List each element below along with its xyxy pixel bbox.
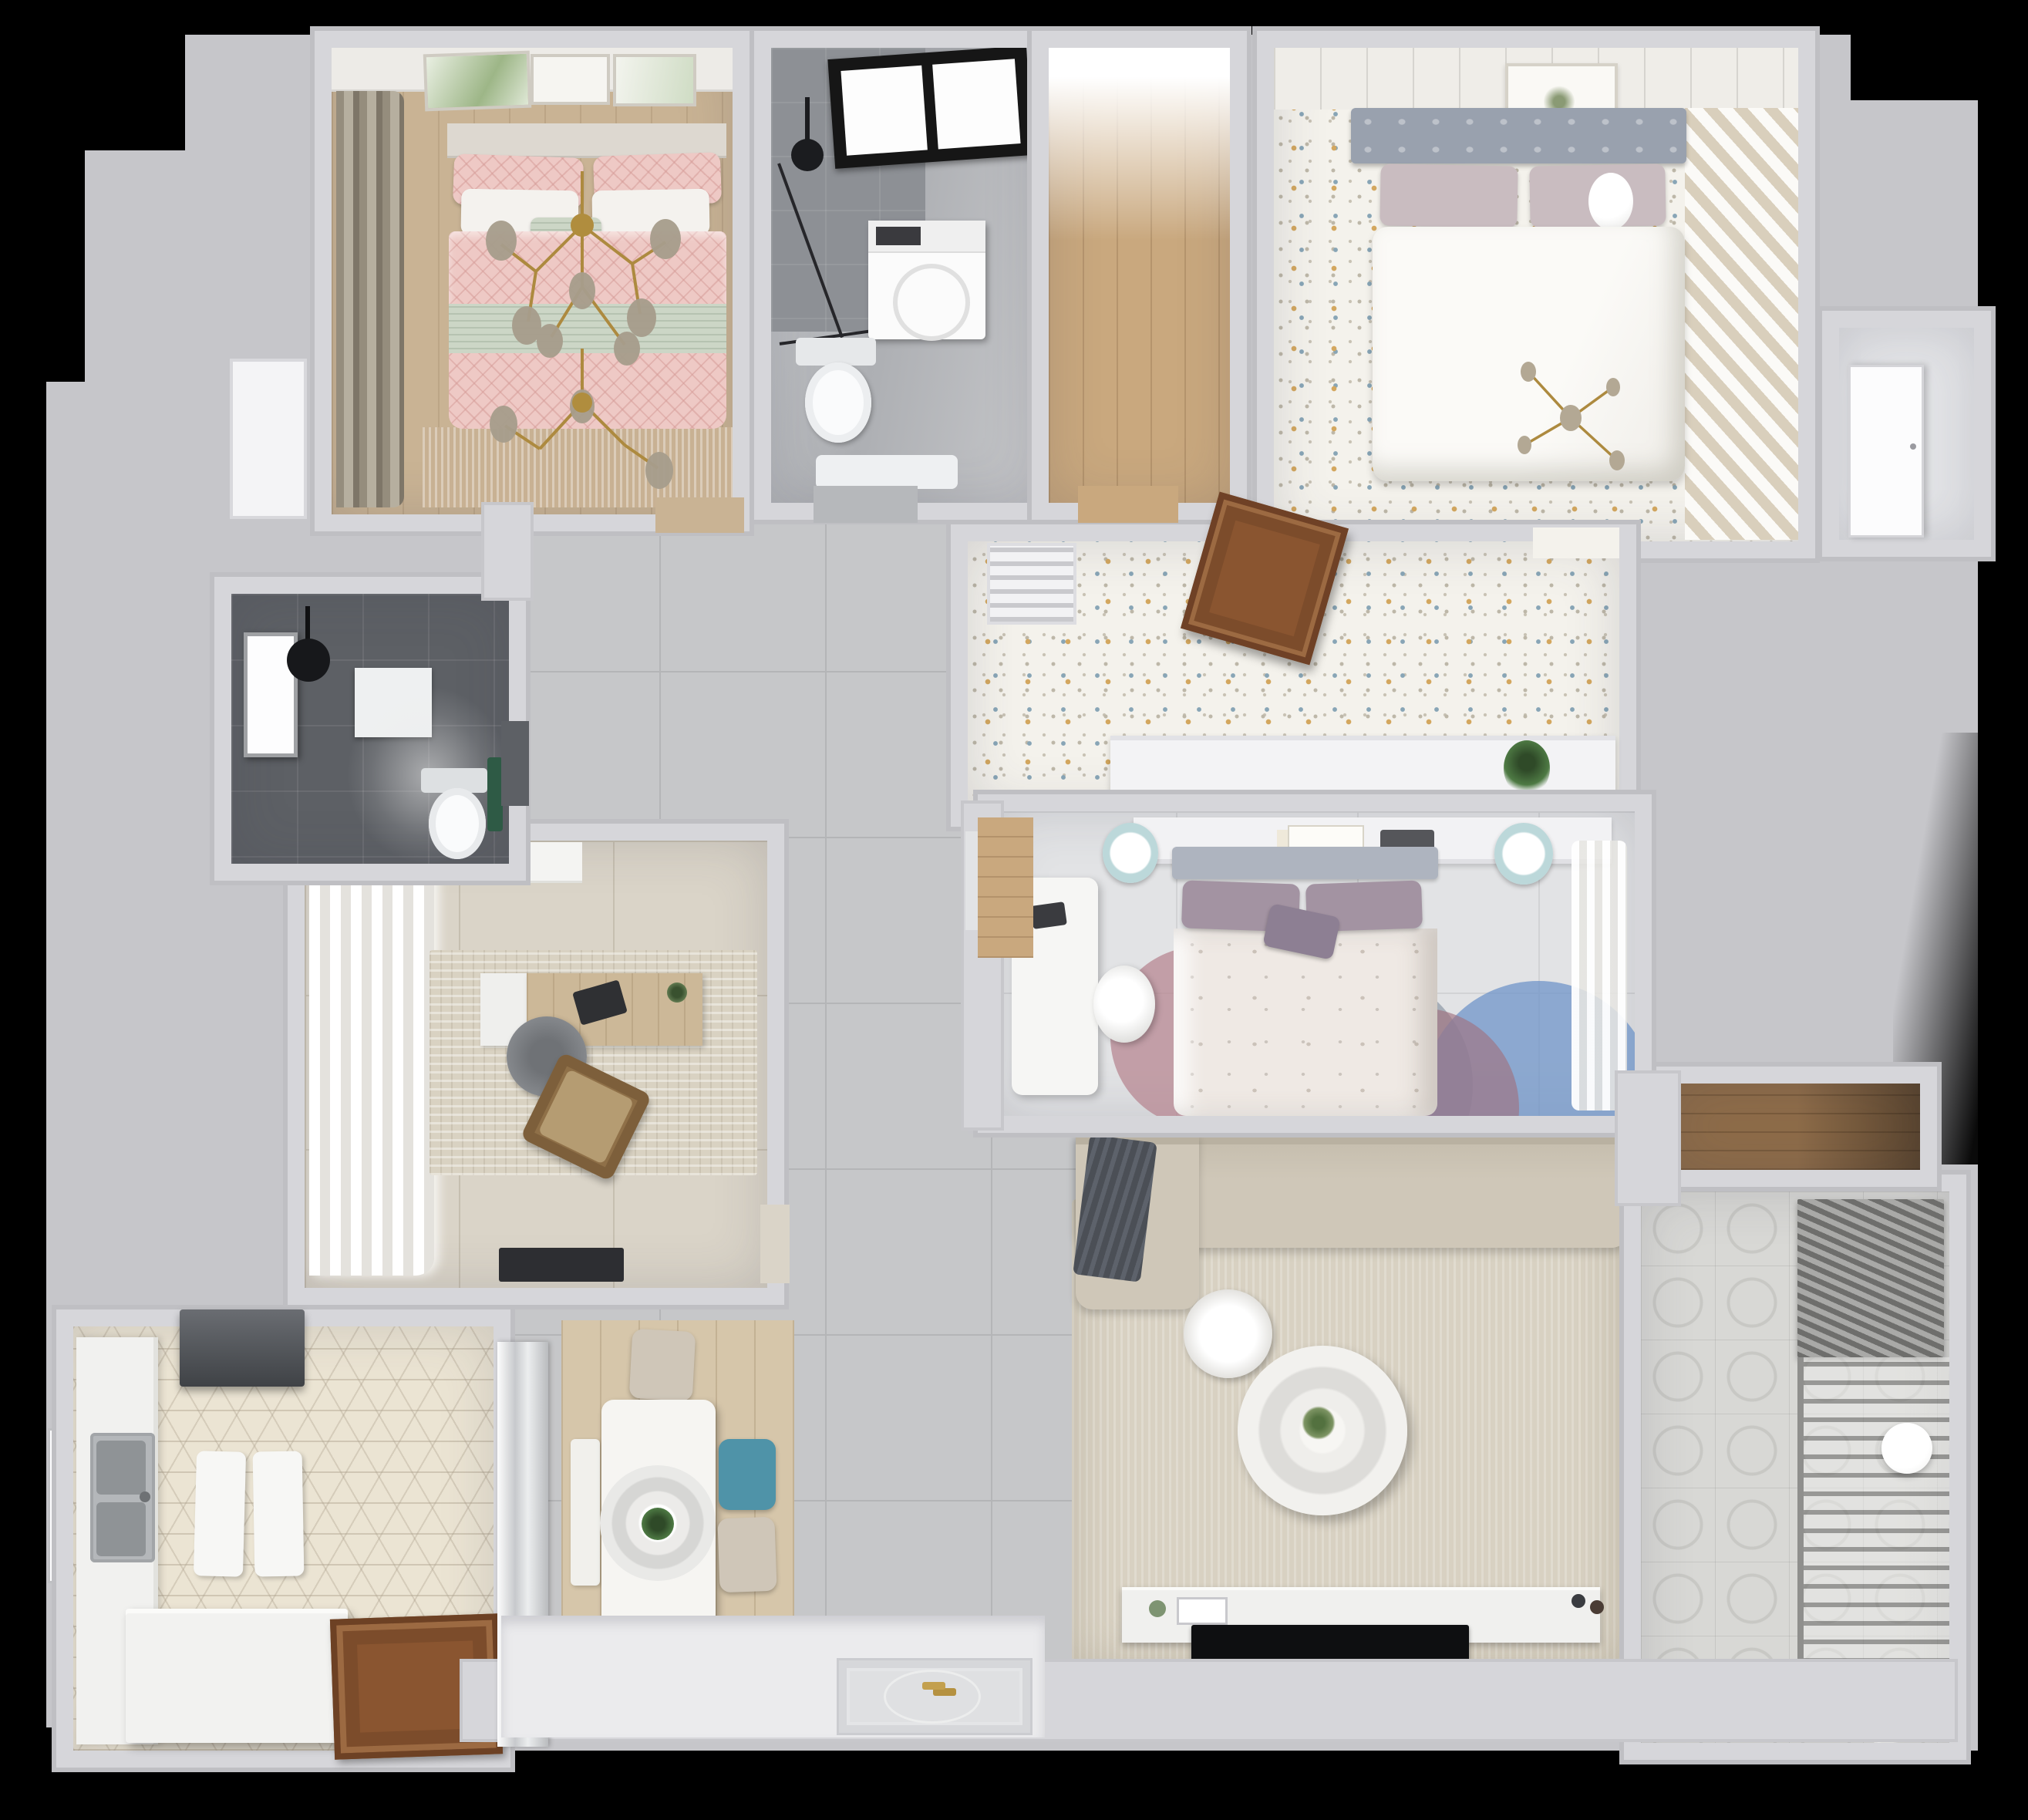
dining-bench [571,1439,600,1586]
window-pane [932,59,1020,149]
washing-machine [868,221,985,339]
lit-wall [1049,48,1230,241]
patterned-door-mat [837,1658,1033,1735]
decor-sphere [1588,173,1633,230]
hall-wood-mat [978,817,1033,958]
exterior-door [230,359,307,519]
ac-vent-grille [987,543,1076,625]
bed-headboard [1351,108,1686,163]
bedroom-2 [1274,48,1798,541]
wall-hall-upper-left [484,505,531,598]
shower-head [791,139,824,171]
shower-arm [805,97,810,142]
dining-chair-top [629,1329,696,1401]
niche-shadow [1797,1084,1920,1170]
crop-patch [1851,35,1978,100]
sink-bowl [96,1441,146,1495]
wall-art-frame [423,51,531,112]
toilet-bowl [429,788,486,859]
window-curtain [336,91,404,507]
cutting-board [194,1451,246,1577]
mat-motif [884,1670,981,1724]
toilet-bowl [805,362,871,443]
entry [501,1616,1045,1737]
side-stool [1184,1289,1272,1378]
white-curtains [309,847,434,1276]
desk-plant [667,982,687,1003]
study [305,841,767,1288]
closet-2 [1839,328,1974,540]
crop-patch [46,150,85,382]
bathroom-2 [231,594,509,864]
dark-door-mat [499,1248,624,1282]
bed-headboard [1172,847,1438,879]
range-hood [180,1309,305,1387]
door-opening-study [760,1205,790,1283]
console-bottles [1572,1594,1585,1608]
lounge-cushion [538,1069,635,1164]
bedroom-1 [332,48,733,514]
brass-cross-ceiling-light [1505,352,1636,484]
washer-door [893,264,970,341]
potted-plant [1504,740,1550,796]
teal-chair [719,1439,776,1510]
washer-display [876,227,921,245]
keys [922,1682,945,1690]
floral-duvet [1174,929,1437,1116]
window-pane [841,66,927,156]
island-counter [126,1609,348,1743]
wall-art-frame [531,54,610,105]
double-sink [90,1433,155,1562]
black-framed-window [827,48,1033,169]
door-opening-bathroom-2 [501,721,529,806]
plant-centerpiece [642,1508,674,1540]
north-corridor [968,541,1619,810]
coffee-table-plant [1302,1406,1336,1440]
dining-chair-bottom [717,1517,777,1593]
console-vase [1149,1600,1166,1617]
desk-accessories [1030,902,1067,929]
crop-patch [46,35,185,150]
teal-stool-left [1103,823,1158,883]
wall-tv [1191,1625,1469,1662]
faucet [140,1491,150,1502]
door-opening-closet [1078,486,1178,523]
door-opening-bathroom-1 [814,486,918,523]
floor-plan-stage [0,0,2028,1820]
kitchen [73,1326,494,1751]
bath-mat [816,455,958,489]
door-knob [1910,443,1916,450]
hall-closet [1049,48,1230,503]
brass-branch-chandelier [459,171,698,511]
cutting-board [253,1451,305,1576]
teal-stool-right [1494,823,1553,885]
wall-art-frame [613,54,696,106]
console-frames [1177,1597,1228,1625]
balcony [1641,1191,1949,1743]
green-towel [487,757,503,831]
master-bedroom [995,811,1635,1116]
bathroom-1 [771,48,1037,503]
sheer-curtains [1572,841,1627,1111]
white-door [1848,365,1924,538]
wall-living-right [1618,1073,1678,1203]
door-opening-bedroom-1 [655,497,744,533]
paper-lantern-ball [1881,1423,1932,1474]
desk-chair [1093,966,1155,1043]
door-opening-bedroom-2 [1533,527,1619,558]
ceiling-shower-head [287,639,330,682]
bed-headboard [447,123,726,156]
mauve-pillow [1380,163,1518,228]
striped-runner-rug [1685,108,1798,540]
sink-bowl [96,1502,146,1556]
roller-blind [1797,1199,1944,1357]
toilet-tank [796,338,876,366]
wood-storage-niche [1673,1084,1920,1170]
